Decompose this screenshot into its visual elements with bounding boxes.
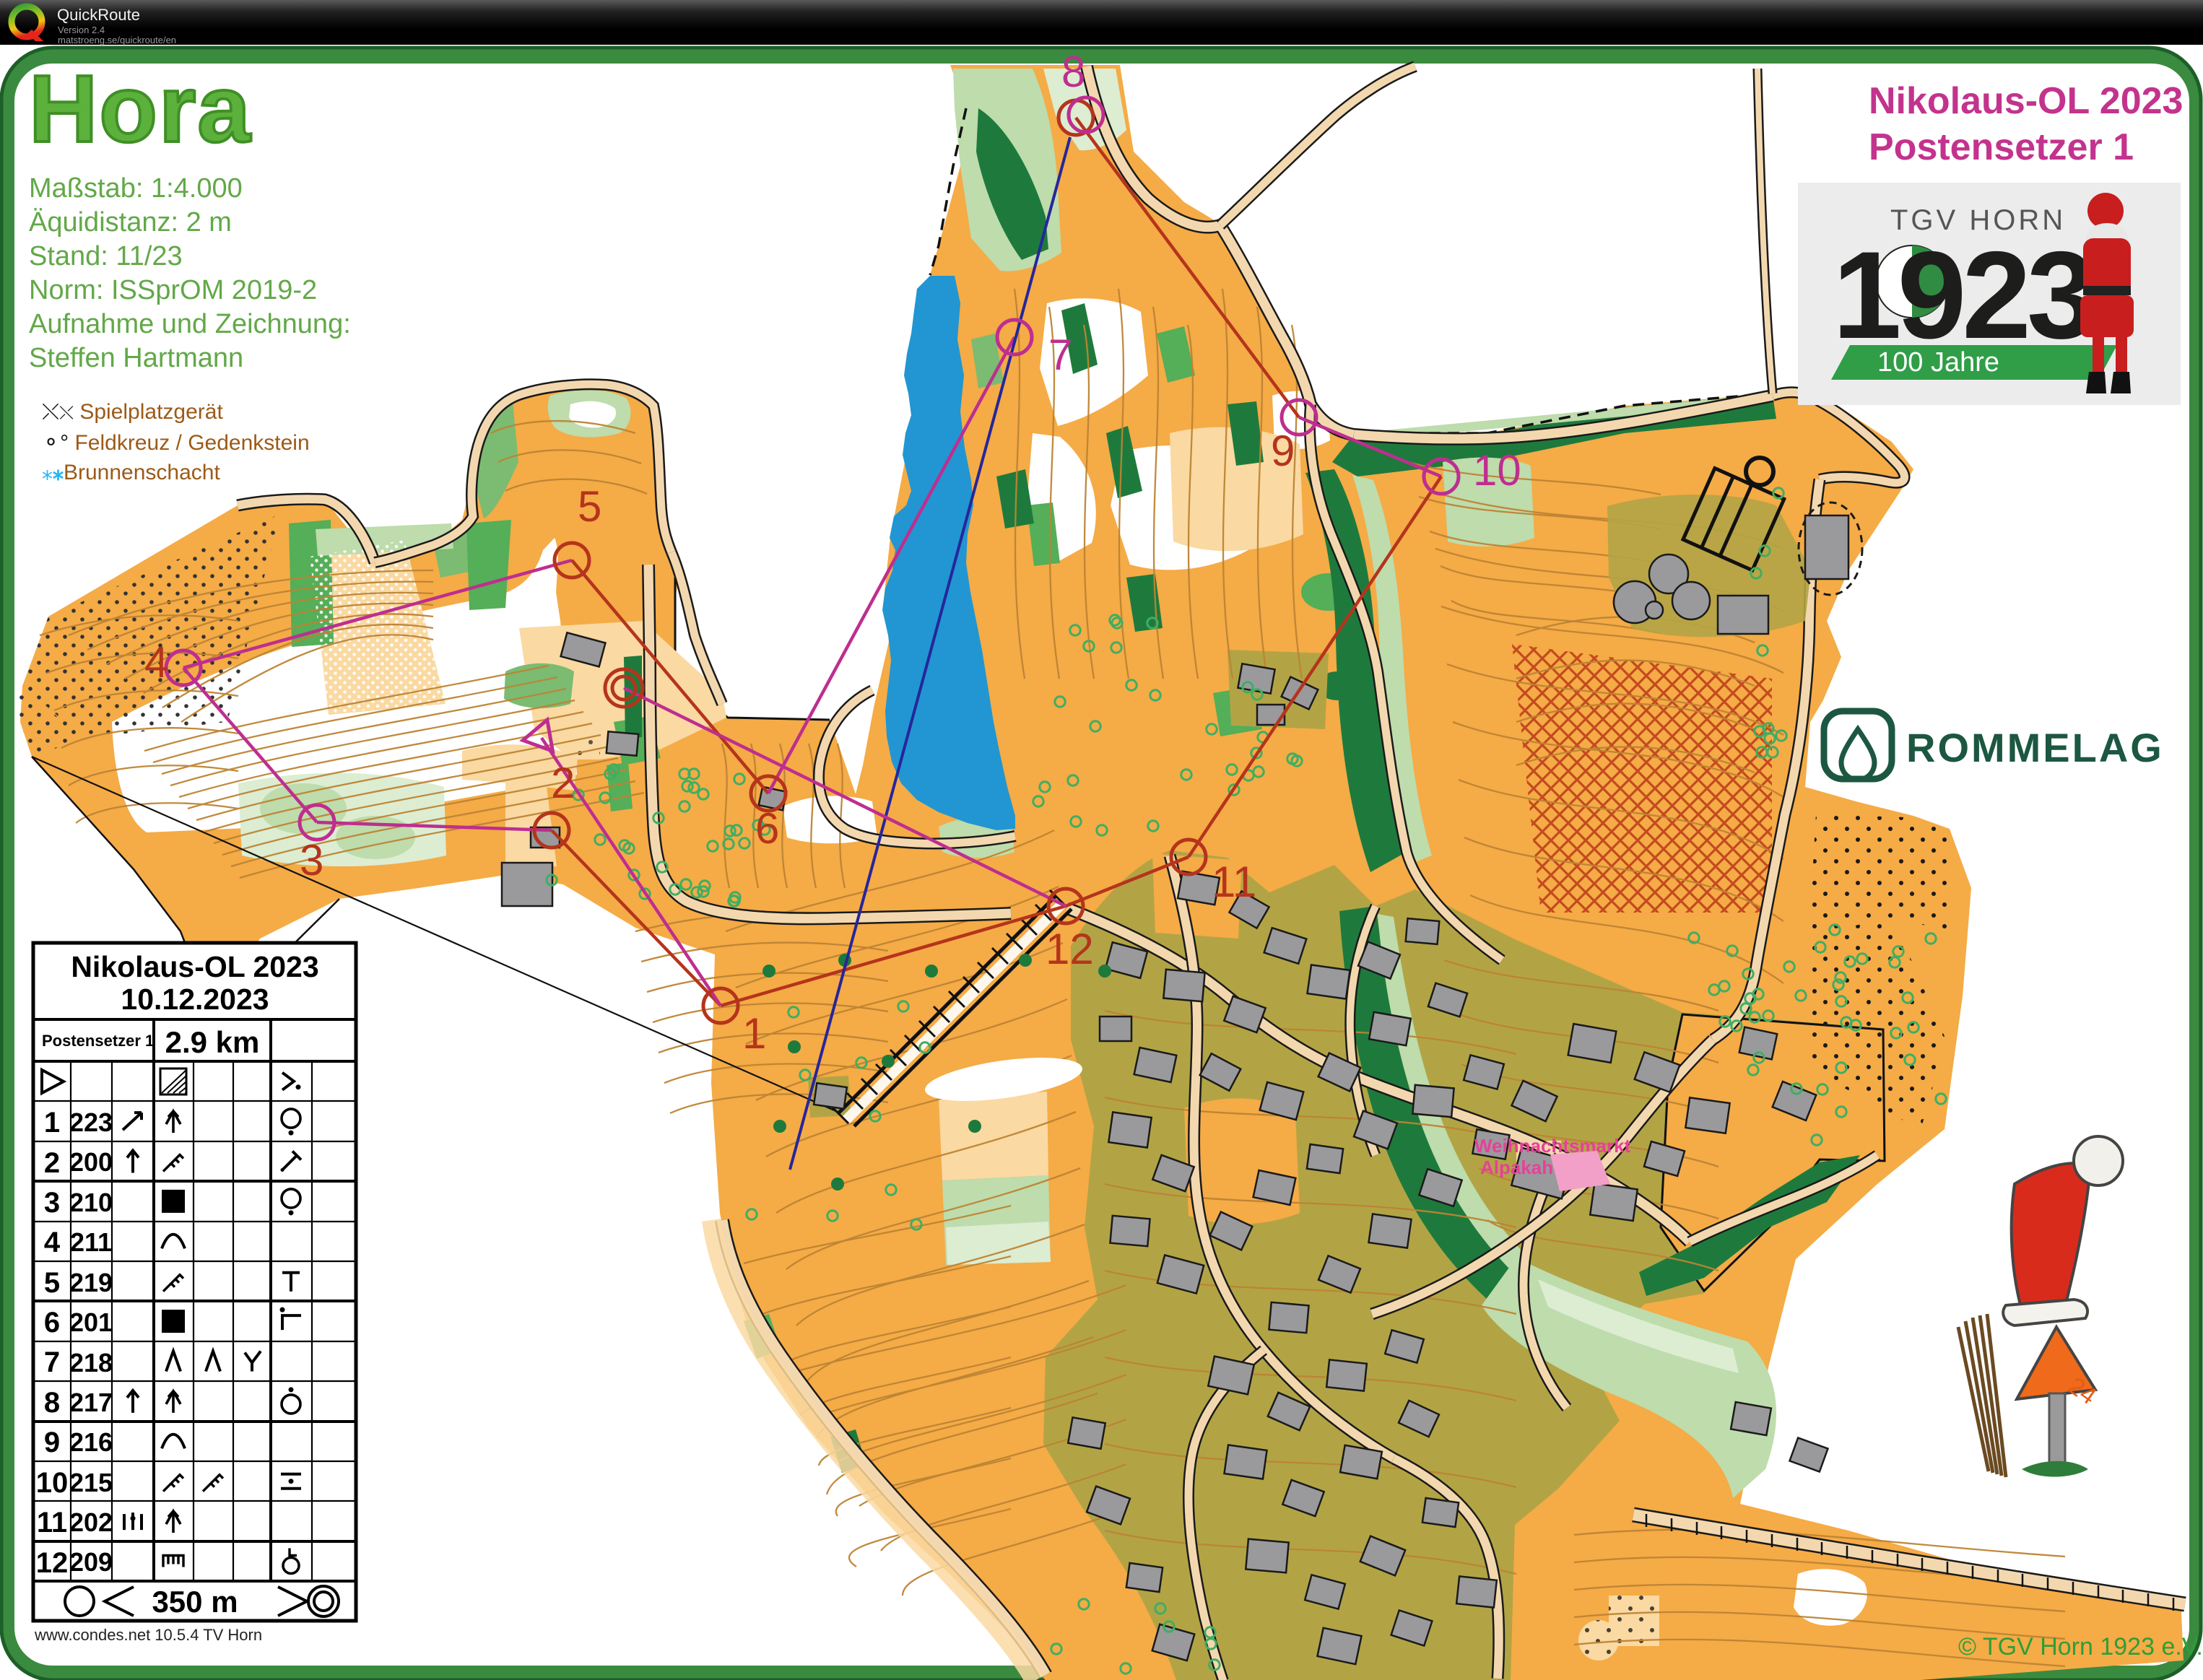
- svg-text:5: 5: [44, 1267, 60, 1299]
- svg-text:215: 215: [69, 1468, 113, 1497]
- svg-text:219: 219: [69, 1268, 113, 1297]
- svg-text:www.condes.net 10.5.4 TV Horn: www.condes.net 10.5.4 TV Horn: [34, 1626, 262, 1644]
- svg-text:8: 8: [44, 1387, 60, 1419]
- svg-text:217: 217: [69, 1388, 113, 1417]
- svg-text:7: 7: [44, 1346, 60, 1378]
- svg-text:210: 210: [69, 1188, 113, 1217]
- svg-text:216: 216: [69, 1427, 113, 1457]
- svg-text:10.12.2023: 10.12.2023: [121, 983, 269, 1016]
- svg-text:3: 3: [44, 1187, 60, 1219]
- svg-text:4: 4: [44, 1227, 61, 1258]
- svg-text:211: 211: [70, 1227, 112, 1257]
- svg-text:209: 209: [69, 1547, 113, 1577]
- svg-text:218: 218: [69, 1348, 113, 1377]
- svg-text:2.9 km: 2.9 km: [165, 1025, 260, 1059]
- svg-text:350 m: 350 m: [152, 1585, 238, 1619]
- svg-text:223: 223: [69, 1107, 113, 1137]
- svg-text:202: 202: [69, 1507, 113, 1537]
- svg-text:Nikolaus-OL 2023: Nikolaus-OL 2023: [71, 950, 318, 983]
- svg-text:201: 201: [69, 1307, 113, 1337]
- svg-text:2: 2: [44, 1147, 60, 1179]
- svg-text:12: 12: [36, 1547, 69, 1579]
- svg-text:1: 1: [44, 1107, 60, 1139]
- svg-text:200: 200: [69, 1147, 113, 1177]
- svg-text:6: 6: [44, 1307, 60, 1339]
- svg-text:9: 9: [44, 1427, 60, 1458]
- svg-text:10: 10: [36, 1467, 69, 1499]
- svg-text:Postensetzer 1: Postensetzer 1: [42, 1032, 154, 1050]
- svg-text:11: 11: [37, 1507, 67, 1538]
